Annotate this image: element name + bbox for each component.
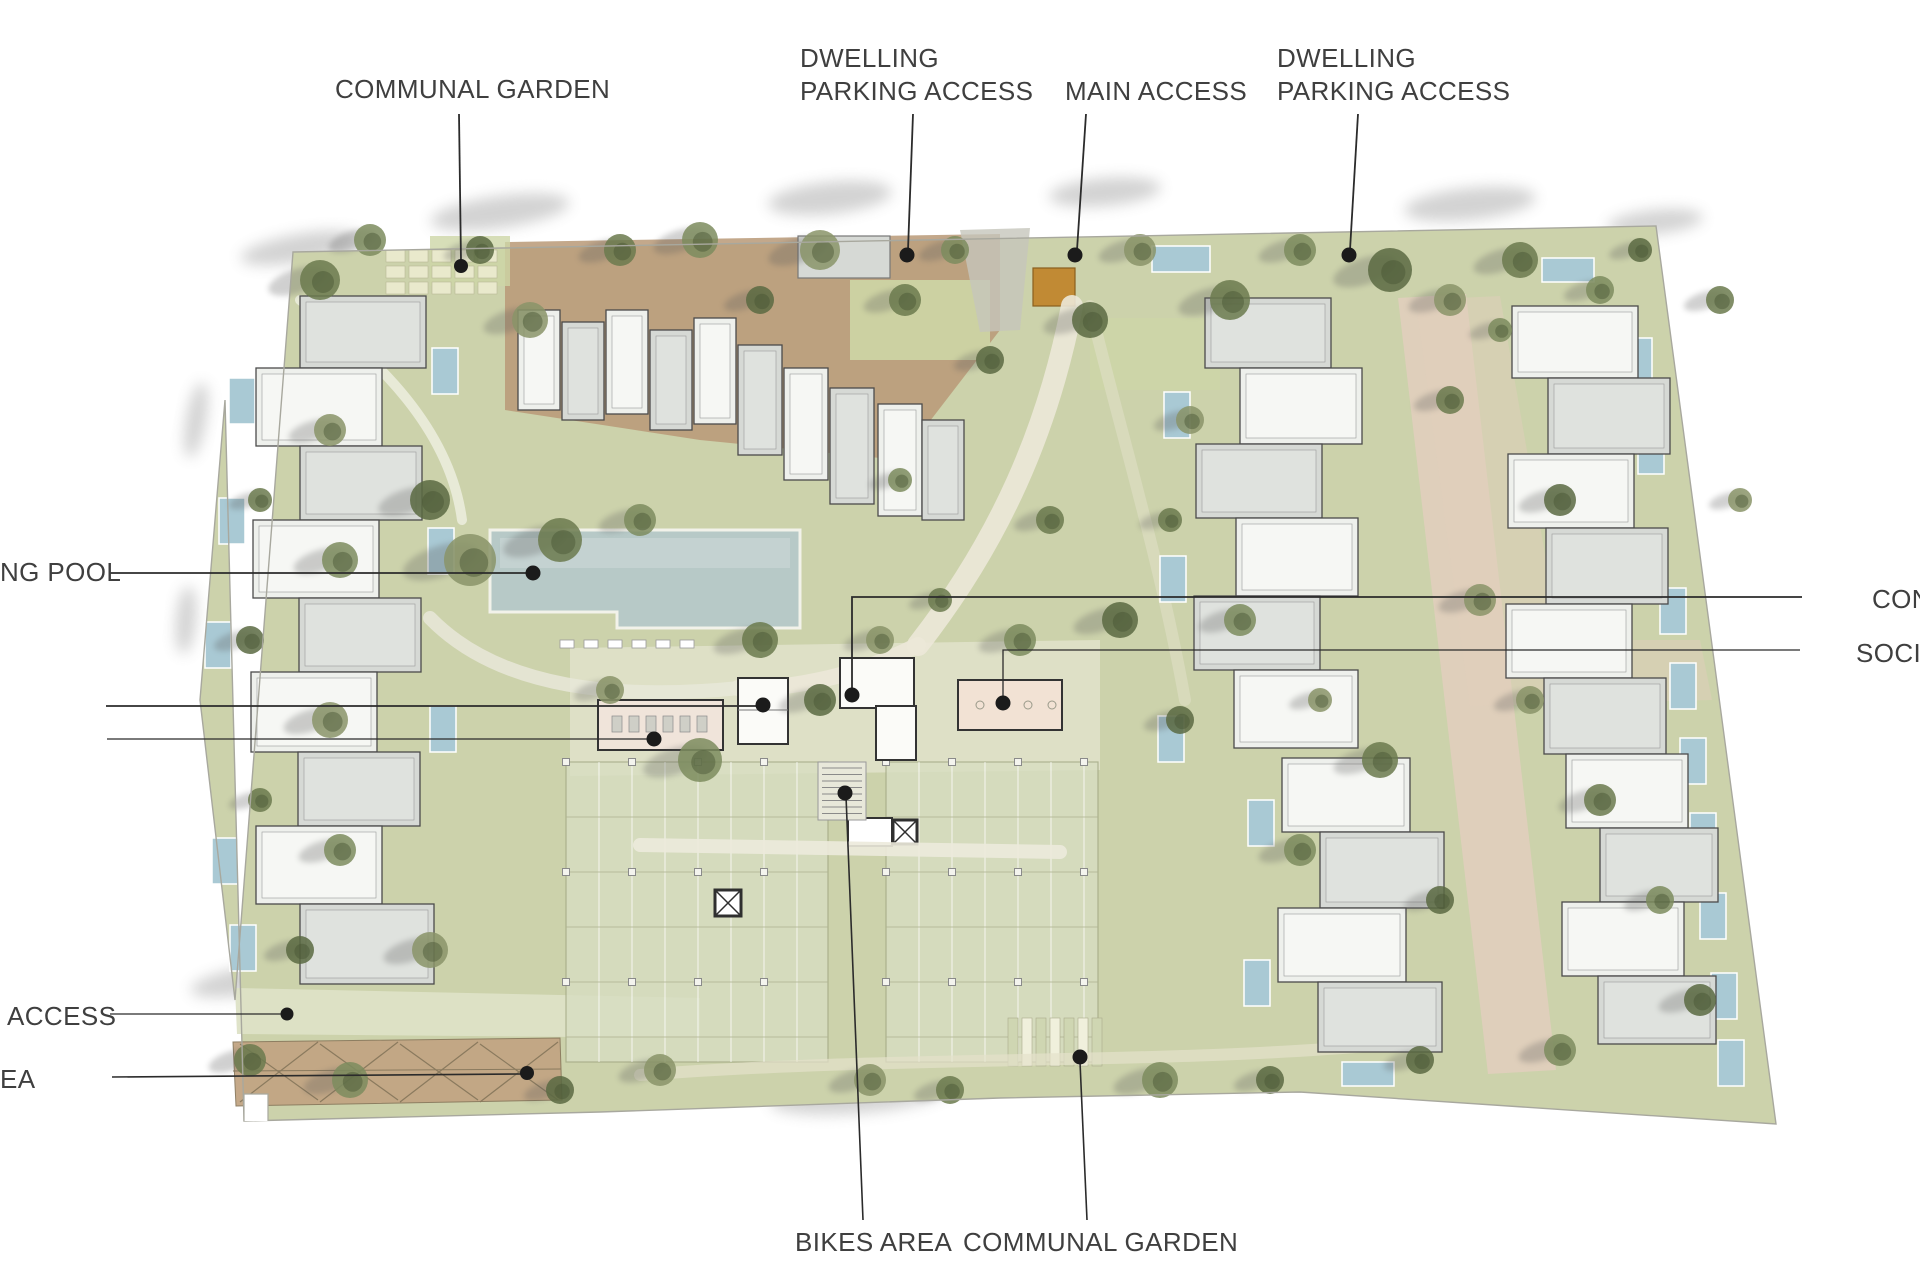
pergola-structure bbox=[233, 1038, 562, 1106]
label-dwelling-parking-left: DWELLING PARKING ACCESS bbox=[800, 42, 1033, 108]
label-line: PARKING ACCESS bbox=[800, 75, 1033, 108]
site-plan-canvas: COMMUNAL GARDEN DWELLING PARKING ACCESS … bbox=[0, 0, 1920, 1280]
label-socia-truncated: SOCIA bbox=[1856, 637, 1920, 670]
label-line: DWELLING bbox=[800, 42, 1033, 75]
label-swimming-pool-truncated: NG POOL bbox=[0, 556, 121, 589]
boundary-step-notch bbox=[244, 1094, 268, 1121]
site-plan-rendering bbox=[0, 0, 1920, 1280]
label-access-truncated: ACCESS bbox=[7, 1000, 116, 1033]
label-communal-garden-top: COMMUNAL GARDEN bbox=[335, 73, 610, 106]
label-dwelling-parking-right: DWELLING PARKING ACCESS bbox=[1277, 42, 1510, 108]
label-con-truncated: CON bbox=[1872, 583, 1920, 616]
label-main-access: MAIN ACCESS bbox=[1065, 75, 1247, 108]
label-bikes-area: BIKES AREA bbox=[795, 1226, 952, 1259]
label-line: DWELLING bbox=[1277, 42, 1510, 75]
label-area-truncated: EA bbox=[0, 1063, 35, 1096]
label-line: PARKING ACCESS bbox=[1277, 75, 1510, 108]
label-communal-garden-bottom: COMMUNAL GARDEN bbox=[963, 1226, 1238, 1259]
